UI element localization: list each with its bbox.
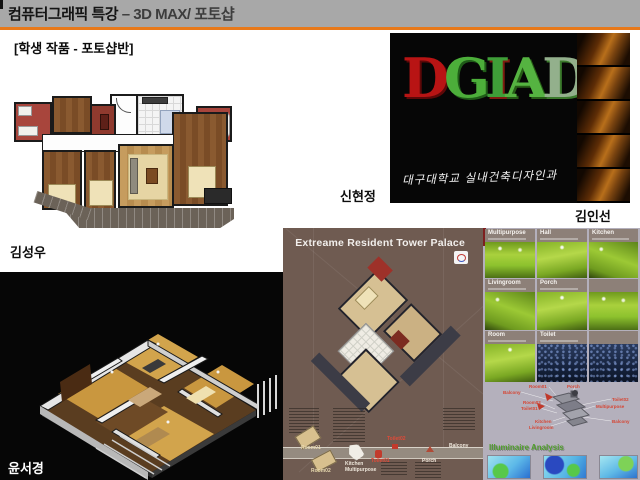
gallery-cell-multipurpose: Multipurpose xyxy=(485,229,535,278)
poster-kitchen-label-line2: Multipurpose xyxy=(345,467,376,473)
coffee-table xyxy=(146,168,158,184)
green-render-gallery: Multipurpose Hall Kitchen Livingroom Por… xyxy=(483,228,640,480)
credit-kim-in-sun: 김인선 xyxy=(575,206,611,225)
poster-room02-label: Room02 xyxy=(311,469,331,475)
diagram-label: Room01 xyxy=(529,384,547,389)
gallery-cell-porch-2 xyxy=(589,279,638,330)
poster-balcony-label: Balcony xyxy=(449,444,468,450)
toilet-icon xyxy=(392,444,398,449)
caption-placeholder xyxy=(540,340,578,342)
diagram-label: Toilet01 xyxy=(521,406,538,411)
render-thumbnail xyxy=(537,344,587,382)
gallery-cell-toilet-2 xyxy=(589,331,638,382)
dgiad-letter: A xyxy=(505,46,542,110)
poster-paragraph xyxy=(443,408,475,432)
tower-palace-poster: Extreame Resident Tower Palace Room01 Ro… xyxy=(283,228,483,480)
slide-subtitle: [학생 작품 - 포토샵반] xyxy=(14,38,134,57)
illuminaire-analysis-title: Illuminaire Analysis xyxy=(489,443,564,452)
slide-title-sub: – 3D MAX/ 포토샵 xyxy=(122,6,234,23)
isometric-3d-artwork xyxy=(0,272,283,480)
gallery-cell-label: Porch xyxy=(540,280,557,286)
credit-yoon-seo-kyung: 윤서경 xyxy=(8,458,44,477)
caption-placeholder xyxy=(488,340,526,342)
render-thumbnail xyxy=(485,242,535,278)
gallery-cell-kitchen: Kitchen xyxy=(589,229,638,278)
gallery-cell-porch: Porch xyxy=(537,279,587,330)
poster-porch-label: Porch xyxy=(422,459,436,465)
diagram-skeleton xyxy=(553,391,589,426)
diagram-label: Balcony xyxy=(503,390,521,395)
render-thumbnail xyxy=(537,242,587,278)
diagram-label: Toilet02 xyxy=(612,397,629,402)
dining-room xyxy=(90,104,116,138)
credit-shin-hyun-jung: 신현정 xyxy=(340,186,376,205)
gallery-cell-header xyxy=(589,279,638,292)
dining-table xyxy=(100,114,109,130)
poster-toilet02-label: Toilet02 xyxy=(387,437,406,443)
window-blinds xyxy=(258,375,276,418)
slide-title-bar: 컴퓨터그래픽 특강 – 3D MAX/ 포토샵 xyxy=(0,0,640,27)
gallery-cell-header: Multipurpose xyxy=(485,229,535,242)
presentation-slide: 컴퓨터그래픽 특강 – 3D MAX/ 포토샵 [학생 작품 - 포토샵반] xyxy=(0,0,640,480)
poster-logo xyxy=(454,251,468,264)
axonometric-key-diagram: Room01 Porch Balcony Room02 Toilet01 Toi… xyxy=(483,383,640,443)
dgiad-letter: D xyxy=(402,46,444,110)
caption-placeholder xyxy=(592,238,629,240)
diagram-label: Livingroom xyxy=(529,425,554,430)
sofa xyxy=(130,158,138,194)
falsecolor-thumbnail xyxy=(543,455,587,479)
filmstrip-frame xyxy=(577,101,630,133)
gallery-cell-header: Hall xyxy=(537,229,587,242)
falsecolor-thumbnail xyxy=(599,455,638,479)
gallery-cell-label: Livingroom xyxy=(488,280,521,286)
slide-title: 컴퓨터그래픽 특강 – 3D MAX/ 포토샵 xyxy=(8,3,234,24)
rotated-floorplan xyxy=(298,269,448,419)
diagram-label: Balcony xyxy=(612,419,630,424)
gallery-cell-header xyxy=(589,331,638,344)
gallery-cell-header: Porch xyxy=(537,279,587,292)
dgiad-artwork: DGIAD 대구대학교 실내건축디자인과 xyxy=(390,33,630,203)
accent-divider xyxy=(0,27,640,30)
toilet-icon xyxy=(375,450,382,458)
corner-mark xyxy=(0,0,3,9)
bedroom-middle xyxy=(84,150,116,210)
diagram-label: Porch xyxy=(567,384,580,389)
tub-fixture xyxy=(18,126,38,136)
render-thumbnail xyxy=(589,242,638,278)
dgiad-letter: I xyxy=(485,46,505,110)
door-arc xyxy=(116,98,131,113)
render-thumbnail xyxy=(485,292,535,330)
filmstrip-frame xyxy=(577,169,630,201)
floorplan-2d-artwork xyxy=(8,88,240,240)
filmstrip-frame xyxy=(577,33,630,65)
slide-title-main: 컴퓨터그래픽 특강 xyxy=(8,6,118,23)
render-thumbnail xyxy=(589,292,638,330)
credit-kim-sung-woo: 김성우 xyxy=(10,242,46,261)
gallery-cell-header: Toilet xyxy=(537,331,587,344)
poster-title: Extreame Resident Tower Palace xyxy=(295,237,465,249)
gallery-cell-header: Room xyxy=(485,331,535,344)
gallery-cell-toilet: Toilet xyxy=(537,331,587,382)
diagram-label: Kitchen xyxy=(535,419,552,424)
gallery-cell-label: Hall xyxy=(540,230,551,236)
kitchen-counter xyxy=(142,97,168,104)
caption-placeholder xyxy=(488,238,526,240)
poster-toilet01-label: Toilet01 xyxy=(371,459,390,465)
render-thumbnail xyxy=(537,292,587,330)
gallery-cell-label: Room xyxy=(488,332,505,338)
caption-placeholder xyxy=(488,288,526,290)
gallery-cell-livingroom: Livingroom xyxy=(485,279,535,330)
bedroom-top xyxy=(52,96,92,134)
dgiad-logotype: DGIAD xyxy=(402,51,580,105)
isometric-render xyxy=(0,272,283,480)
poster-paragraph xyxy=(333,408,365,444)
render-thumbnail xyxy=(589,344,638,382)
wall-block xyxy=(204,188,232,204)
poster-room01-label: Room01 xyxy=(301,446,321,452)
living-room xyxy=(118,144,174,208)
bed xyxy=(89,180,113,206)
gallery-cell-label: Kitchen xyxy=(592,230,614,236)
gallery-cell-room: Room xyxy=(485,331,535,382)
dgiad-letter: G xyxy=(444,46,485,110)
gallery-cell-label: Toilet xyxy=(540,332,556,338)
diagram-label: Multipurpose xyxy=(596,404,625,409)
gallery-cell-header: Livingroom xyxy=(485,279,535,292)
render-thumbnail xyxy=(485,344,535,382)
gallery-cell-hall: Hall xyxy=(537,229,587,278)
dgiad-caption: 대구대학교 실내건축디자인과 xyxy=(402,166,582,188)
gallery-cell-header: Kitchen xyxy=(589,229,638,242)
sink-fixture xyxy=(18,106,32,116)
photo-filmstrip xyxy=(577,33,630,203)
caption-placeholder xyxy=(540,238,578,240)
filmstrip-frame xyxy=(577,67,630,99)
falsecolor-thumbnail xyxy=(487,455,531,479)
gallery-cell-label: Multipurpose xyxy=(488,230,526,236)
diagram-label: Room02 xyxy=(523,400,541,405)
caption-placeholder xyxy=(540,288,578,290)
filmstrip-frame xyxy=(577,135,630,167)
